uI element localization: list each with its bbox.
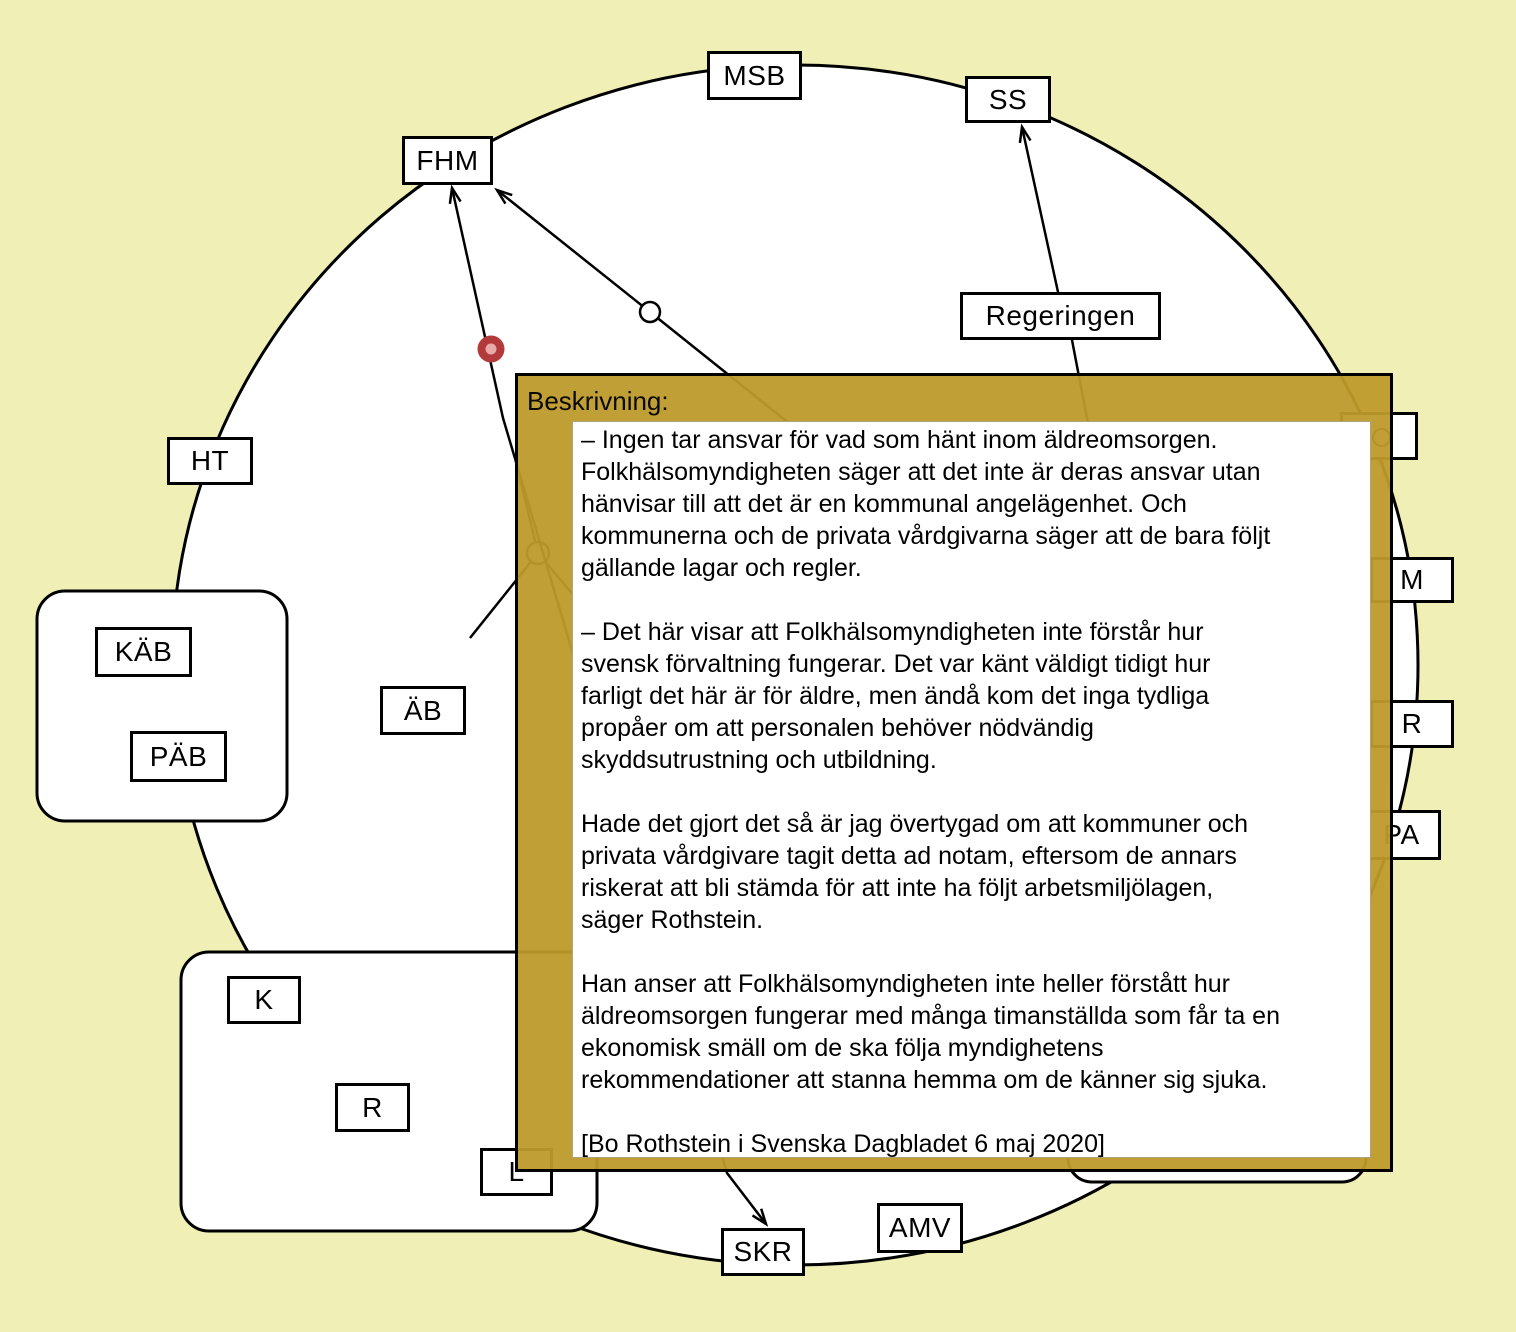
node-SKR[interactable]: SKR xyxy=(721,1228,805,1276)
node-SS[interactable]: SS xyxy=(965,76,1051,123)
description-paragraph-3: Hade det gjort det så är jag övertygad o… xyxy=(581,808,1362,936)
diagram-stage: FHMMSBSSRegeringenHTKÄBPÄBÄBKRLSKRAMVMRP… xyxy=(0,0,1516,1332)
node-AB[interactable]: ÄB xyxy=(380,686,466,735)
description-panel: Beskrivning: – Ingen tar ansvar för vad … xyxy=(515,373,1393,1172)
node-PAB[interactable]: PÄB xyxy=(130,731,227,782)
description-panel-title: Beskrivning: xyxy=(527,386,669,417)
description-paragraph-2: – Det här visar att Folkhälsomyndigheten… xyxy=(581,616,1362,776)
node-K[interactable]: K xyxy=(227,976,301,1024)
node-MSB[interactable]: MSB xyxy=(707,51,802,100)
description-panel-body: – Ingen tar ansvar för vad som hänt inom… xyxy=(572,421,1371,1158)
open-circle-marker xyxy=(640,302,660,322)
node-Regeringen[interactable]: Regeringen xyxy=(960,292,1161,340)
description-paragraph-5: [Bo Rothstein i Svenska Dagbladet 6 maj … xyxy=(581,1128,1362,1158)
description-paragraph-1: – Ingen tar ansvar för vad som hänt inom… xyxy=(581,424,1362,584)
node-R1[interactable]: R xyxy=(335,1083,410,1132)
description-paragraph-4: Han anser att Folkhälsomyndigheten inte … xyxy=(581,968,1362,1096)
node-HT[interactable]: HT xyxy=(167,437,253,485)
node-FHM[interactable]: FHM xyxy=(402,136,493,185)
node-KAB[interactable]: KÄB xyxy=(95,627,192,677)
group-kab-pab[interactable] xyxy=(37,591,287,821)
red-dot-marker xyxy=(478,336,505,363)
node-AMV[interactable]: AMV xyxy=(877,1203,963,1253)
